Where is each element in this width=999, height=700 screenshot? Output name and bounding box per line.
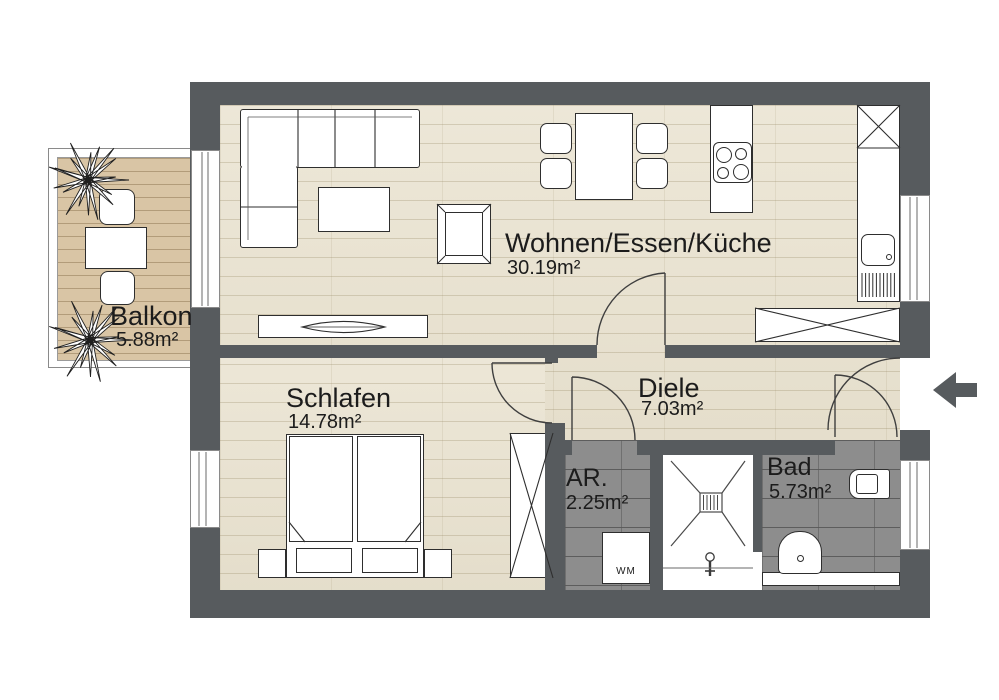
toilet-bowl	[856, 474, 878, 494]
nightstand-right	[424, 549, 452, 578]
burner-icon	[716, 147, 732, 163]
washbasin	[778, 531, 822, 574]
wall-shower-bath-divider	[753, 440, 762, 552]
window-bedroom	[190, 450, 220, 528]
room-area-living: 30.19m²	[507, 258, 580, 278]
wall-bottom	[190, 590, 930, 618]
coffee-table	[318, 187, 390, 232]
wall-living-south-a	[220, 345, 597, 358]
side-table-inner	[445, 212, 483, 256]
hall-wardrobe	[755, 308, 900, 342]
window-bathroom	[900, 460, 930, 550]
mattress-left	[289, 436, 353, 542]
room-area-balcony: 5.88m²	[116, 330, 178, 350]
room-label-storage: AR.	[566, 466, 608, 491]
wall-bedroom-east-stub	[545, 358, 558, 363]
dining-chair	[540, 123, 572, 154]
bathroom-counter	[762, 572, 900, 586]
sofa-horizontal-section	[240, 109, 420, 168]
wall-utility-north-a	[545, 440, 572, 455]
dining-chair	[636, 123, 668, 154]
mattress-right	[357, 436, 421, 542]
room-area-bathroom: 5.73m²	[769, 482, 831, 502]
kitchen-sink	[861, 234, 895, 266]
wall-living-south-b	[665, 345, 900, 358]
room-label-living: Wohnen/Essen/Küche	[505, 230, 772, 257]
nightstand-left	[258, 549, 286, 578]
dining-table	[575, 113, 633, 200]
wall-top	[190, 82, 930, 105]
shower-floor	[663, 440, 762, 590]
burner-icon	[717, 167, 729, 179]
balcony-chair-bottom	[100, 271, 135, 305]
pillow-left	[296, 548, 352, 573]
balcony-table	[85, 227, 147, 269]
sofa-vertical-section	[240, 166, 298, 248]
room-area-storage: 2.25m²	[566, 493, 628, 513]
kitchen-tall-unit	[857, 105, 900, 302]
floor-plan: Wohnen/Essen/Küche 30.19m² Balkon 5.88m²…	[0, 0, 999, 700]
burner-icon	[735, 148, 747, 160]
washbasin-drain-icon	[797, 555, 804, 562]
room-label-balcony: Balkon	[110, 303, 193, 330]
room-area-hallway: 7.03m²	[641, 399, 703, 419]
balcony-chair-top	[99, 189, 135, 225]
dining-chair	[636, 158, 668, 189]
dining-chair	[540, 158, 572, 189]
room-label-bathroom: Bad	[767, 455, 811, 480]
burner-icon	[733, 164, 749, 180]
room-area-bedroom: 14.78m²	[288, 412, 361, 432]
wall-storage-shower-divider	[650, 440, 663, 590]
washing-machine-label: WM	[602, 567, 650, 577]
entrance-arrow-icon	[933, 372, 977, 408]
sofa-corner-patch	[242, 163, 296, 169]
tv-sideboard	[258, 315, 428, 338]
entrance-opening	[900, 358, 930, 430]
room-label-bedroom: Schlafen	[286, 385, 391, 412]
window-kitchen	[900, 195, 930, 302]
pillow-right	[362, 548, 418, 573]
balcony-door	[191, 150, 220, 308]
